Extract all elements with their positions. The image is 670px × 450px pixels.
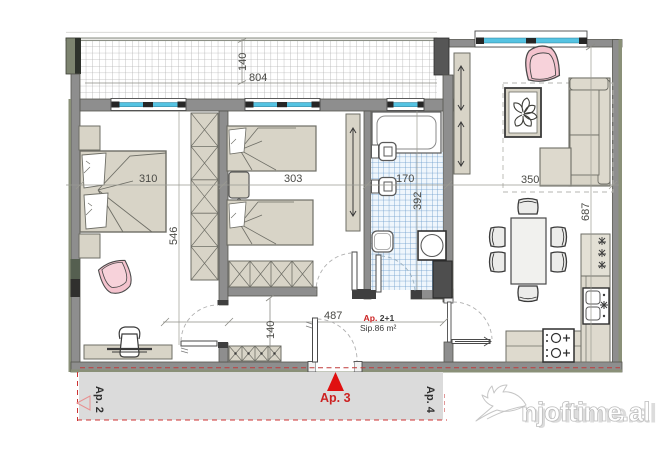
- svg-text:Ap. 2: Ap. 2: [93, 386, 105, 413]
- svg-text:303: 303: [284, 173, 302, 185]
- svg-text:310: 310: [139, 173, 157, 185]
- svg-text:Ap. 3: Ap. 3: [320, 391, 351, 405]
- svg-text:170: 170: [396, 173, 414, 185]
- svg-text:687: 687: [580, 203, 592, 221]
- svg-text:140: 140: [265, 321, 277, 339]
- svg-text:140: 140: [237, 53, 249, 71]
- svg-text:546: 546: [168, 227, 180, 245]
- svg-text:Sip.86 m²: Sip.86 m²: [360, 323, 397, 333]
- svg-text:804: 804: [249, 72, 267, 84]
- svg-text:350: 350: [521, 174, 539, 186]
- svg-text:392: 392: [412, 192, 424, 210]
- svg-text:Ap. 4: Ap. 4: [424, 386, 436, 414]
- svg-text:njoftime.al: njoftime.al: [521, 397, 650, 427]
- svg-text:Ap. 2+1: Ap. 2+1: [364, 313, 395, 323]
